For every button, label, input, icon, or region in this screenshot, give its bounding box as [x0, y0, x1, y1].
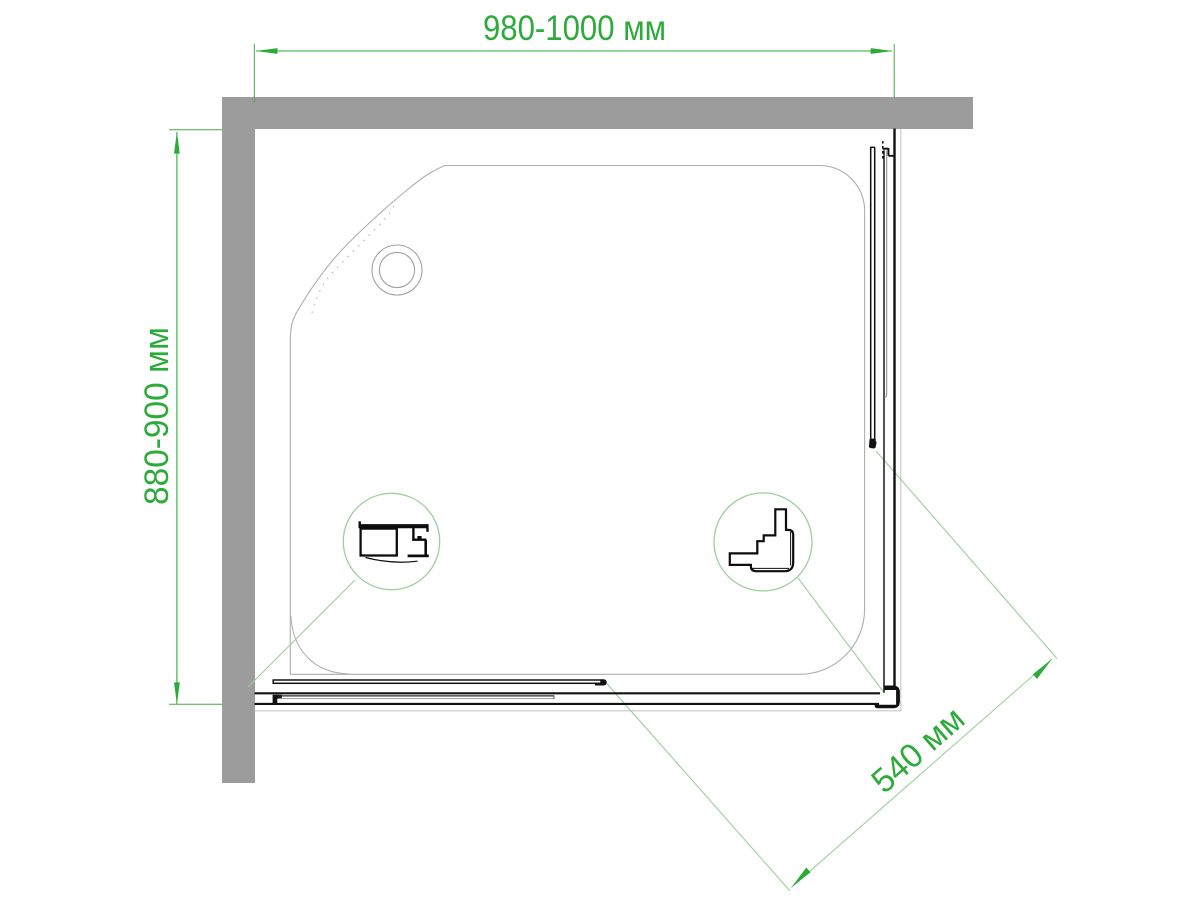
svg-text:980-1000 мм: 980-1000 мм: [483, 9, 666, 48]
svg-text:880-900 мм: 880-900 мм: [138, 327, 176, 505]
